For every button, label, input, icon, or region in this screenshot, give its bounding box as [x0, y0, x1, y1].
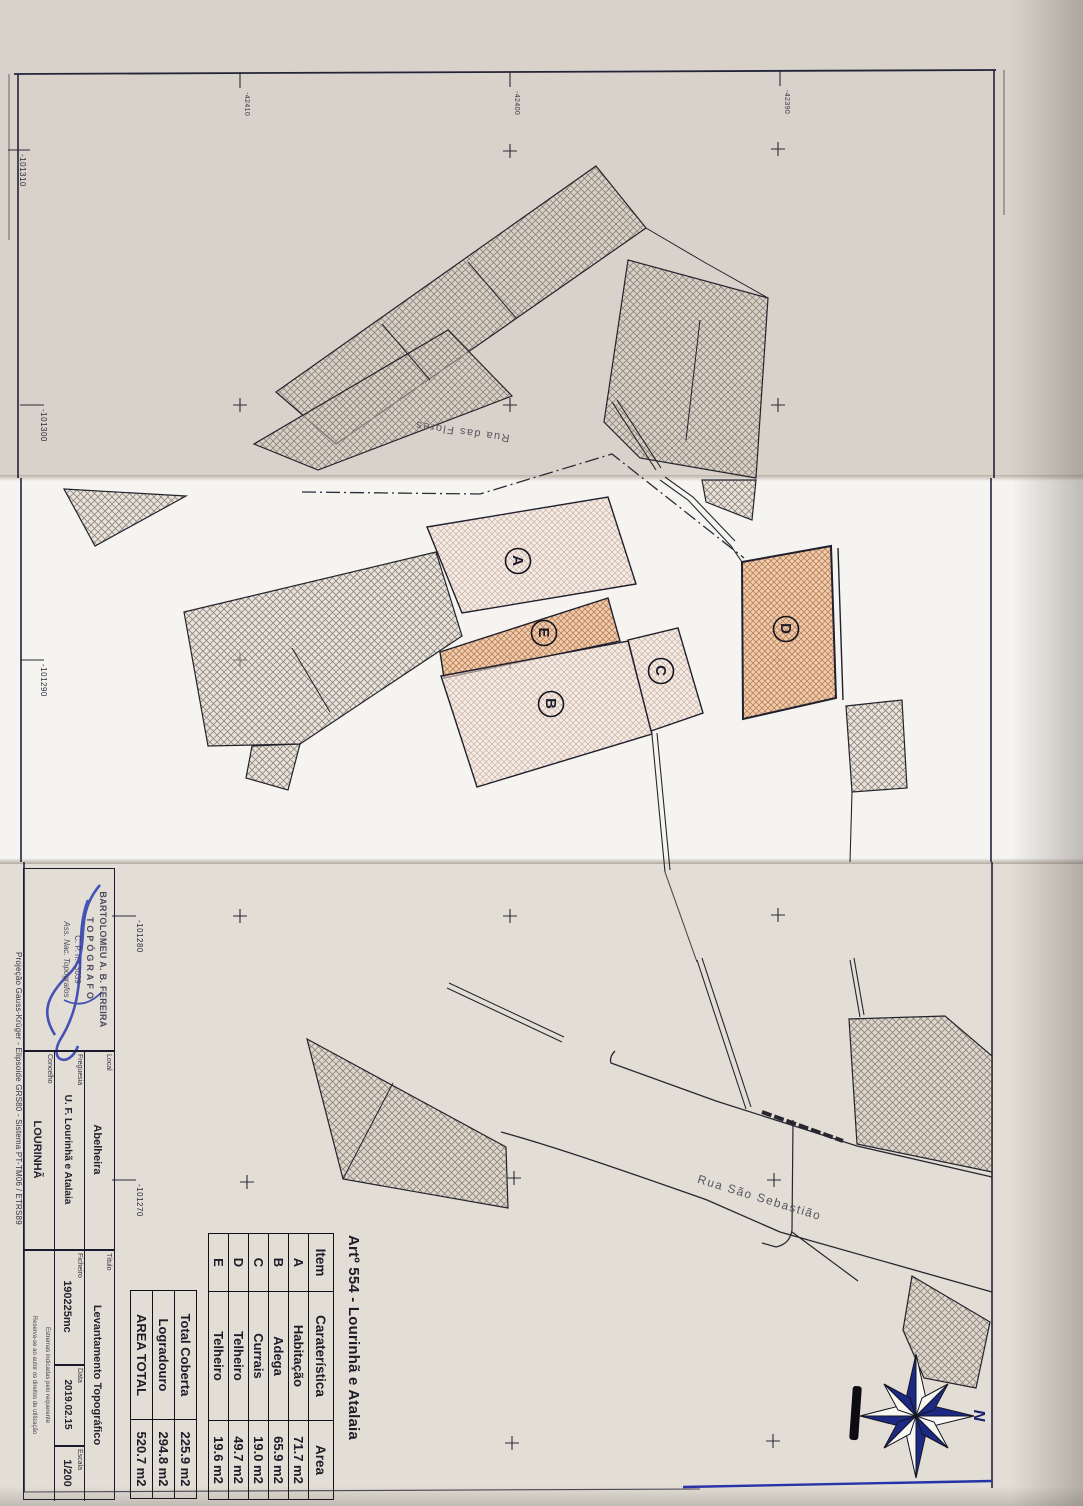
field-value-ficheiro: 190225mc: [61, 1249, 73, 1364]
compass-north-label: N: [966, 1403, 991, 1428]
coord-left-5: -101270: [135, 1184, 143, 1217]
paper-fold-crease-lower: [0, 858, 1083, 864]
coord-left-1: -101310: [18, 154, 26, 187]
cell-item: C: [249, 1234, 269, 1292]
field-label-escala: Escala: [76, 1449, 83, 1470]
building-marker-a: A: [505, 548, 530, 573]
paper-fold-crease-upper: [0, 475, 1083, 481]
field-label-local: Local: [105, 1054, 112, 1071]
cell-feature: Habitação: [289, 1292, 309, 1421]
field-value-concelho: LOURINHÃ: [31, 1050, 43, 1249]
cell-total-label: AREA TOTAL: [131, 1291, 153, 1420]
building-marker-c: C: [648, 658, 673, 683]
coord-top-3: -42390: [783, 90, 790, 114]
stamp-name: BARTOLOMEU A. B. FEREIRA: [98, 869, 108, 1050]
title-block-line: [84, 1249, 85, 1501]
scan-shadow-right: [1011, 0, 1083, 1506]
note-estremas: Estremas indicadas pelo requerente: [44, 1249, 50, 1501]
areas-table: Item Caraterística Area A Habitação 71.7…: [208, 1233, 334, 1500]
field-value-data: 2019.02.15: [62, 1364, 73, 1445]
cell-item: E: [209, 1234, 229, 1292]
cell-item: B: [269, 1234, 289, 1292]
areas-table-block: Artº 554 - Lourinhã e Atalaia Item Carat…: [112, 1233, 362, 1500]
building-marker-d: D: [773, 616, 798, 641]
building-marker-b: B: [538, 691, 563, 716]
coord-left-3: -101290: [39, 664, 47, 697]
scanned-survey-sheet: -101310 -101300 -101290 -101280 -101270 …: [0, 0, 1083, 1506]
cell-feature: Telheiro: [229, 1292, 249, 1421]
coord-top-2: -42400: [513, 91, 520, 115]
col-header-feature: Caraterística: [309, 1292, 334, 1421]
stamp-association: Ass. Nac. Topógrafos: [62, 869, 71, 1050]
table-row: C Currais 19.0 m2: [249, 1234, 269, 1500]
title-block-line: [84, 1050, 85, 1249]
paper-band-middle: [0, 480, 1083, 862]
cell-item: D: [229, 1234, 249, 1292]
field-label-data: Data: [76, 1368, 83, 1383]
field-value-freguesia: U. F. Lourinhã e Atalaia: [62, 1050, 73, 1249]
stamp-profession: TOPÓGRAFO: [85, 869, 95, 1050]
field-label-titulo: Título: [105, 1253, 112, 1271]
cell-feature: Telheiro: [209, 1292, 229, 1421]
cell-feature: Adega: [269, 1292, 289, 1421]
projection-note: Projeção Gauss-Krüger - Elipsoide GRS80 …: [14, 952, 22, 1225]
field-label-freguesia: Freguesia: [76, 1054, 83, 1085]
surveyor-stamp: BARTOLOMEU A. B. FEREIRA TOPÓGRAFO C. P.…: [25, 869, 114, 1050]
note-reserva: Reserva-se ao autor os direitos de utili…: [31, 1249, 37, 1501]
cell-item: A: [289, 1234, 309, 1292]
field-label-ficheiro: Ficheiro: [76, 1253, 83, 1278]
table-row: B Adega 65.9 m2: [269, 1234, 289, 1500]
building-marker-e: E: [531, 620, 556, 645]
coord-top-1: -42410: [243, 92, 250, 116]
col-header-item: Item: [309, 1234, 334, 1292]
coord-left-2: -101300: [39, 409, 47, 442]
cell-total-label: Total Coberta: [175, 1291, 197, 1420]
table-row: A Habitação 71.7 m2: [289, 1234, 309, 1500]
table-row: AREA TOTAL 520.7 m2: [131, 1291, 153, 1499]
title-block: BARTOLOMEU A. B. FEREIRA TOPÓGRAFO C. P.…: [23, 868, 115, 1500]
cell-feature: Currais: [249, 1292, 269, 1421]
field-value-local: Abelheira: [91, 1050, 103, 1249]
title-block-line: [54, 1050, 55, 1249]
plan-title: Artº 554 - Lourinhã e Atalaia: [340, 1233, 362, 1500]
field-value-titulo: Levantamento Topográfico: [91, 1249, 103, 1501]
stamp-number: C. P. n.º 3039: [73, 869, 82, 1050]
field-label-concelho: Concelho: [46, 1054, 53, 1084]
table-row: D Telheiro 49.7 m2: [229, 1234, 249, 1500]
cell-total-label: Logradouro: [153, 1291, 175, 1420]
scan-shadow-bottom: [0, 1486, 1083, 1506]
paper-band-top: [0, 0, 1083, 480]
totals-table: Total Coberta 225.9 m2 Logradouro 294.8 …: [130, 1290, 197, 1499]
table-row: E Telheiro 19.6 m2: [209, 1234, 229, 1500]
coord-left-4: -101280: [135, 920, 143, 953]
table-row: Logradouro 294.8 m2: [153, 1291, 175, 1499]
table-row: Total Coberta 225.9 m2: [175, 1291, 197, 1499]
title-block-line: [54, 1249, 55, 1501]
